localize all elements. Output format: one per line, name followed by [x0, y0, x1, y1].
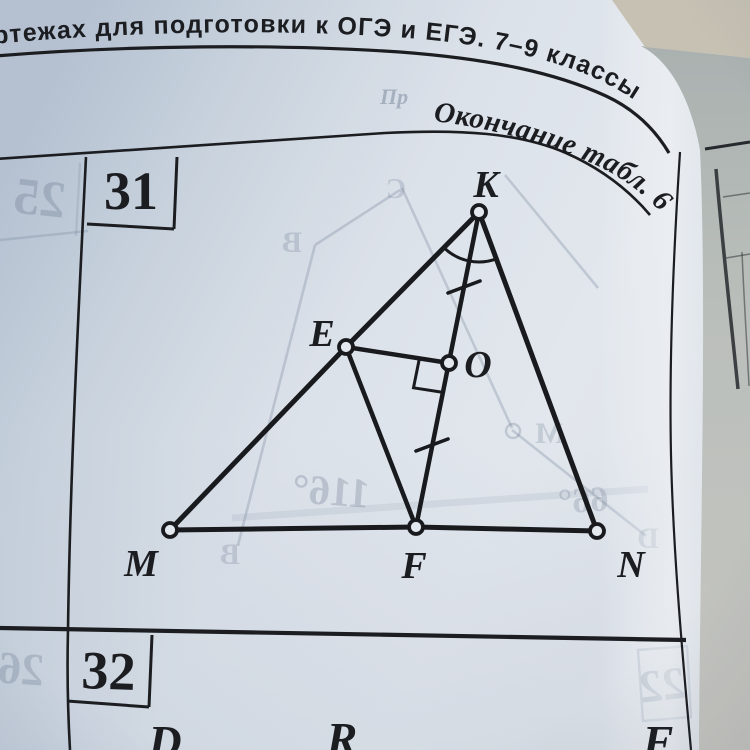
book-photo-page: 25 26 22 116° 66° B C M B D Пр	[0, 0, 750, 750]
photo-tint	[0, 0, 750, 750]
